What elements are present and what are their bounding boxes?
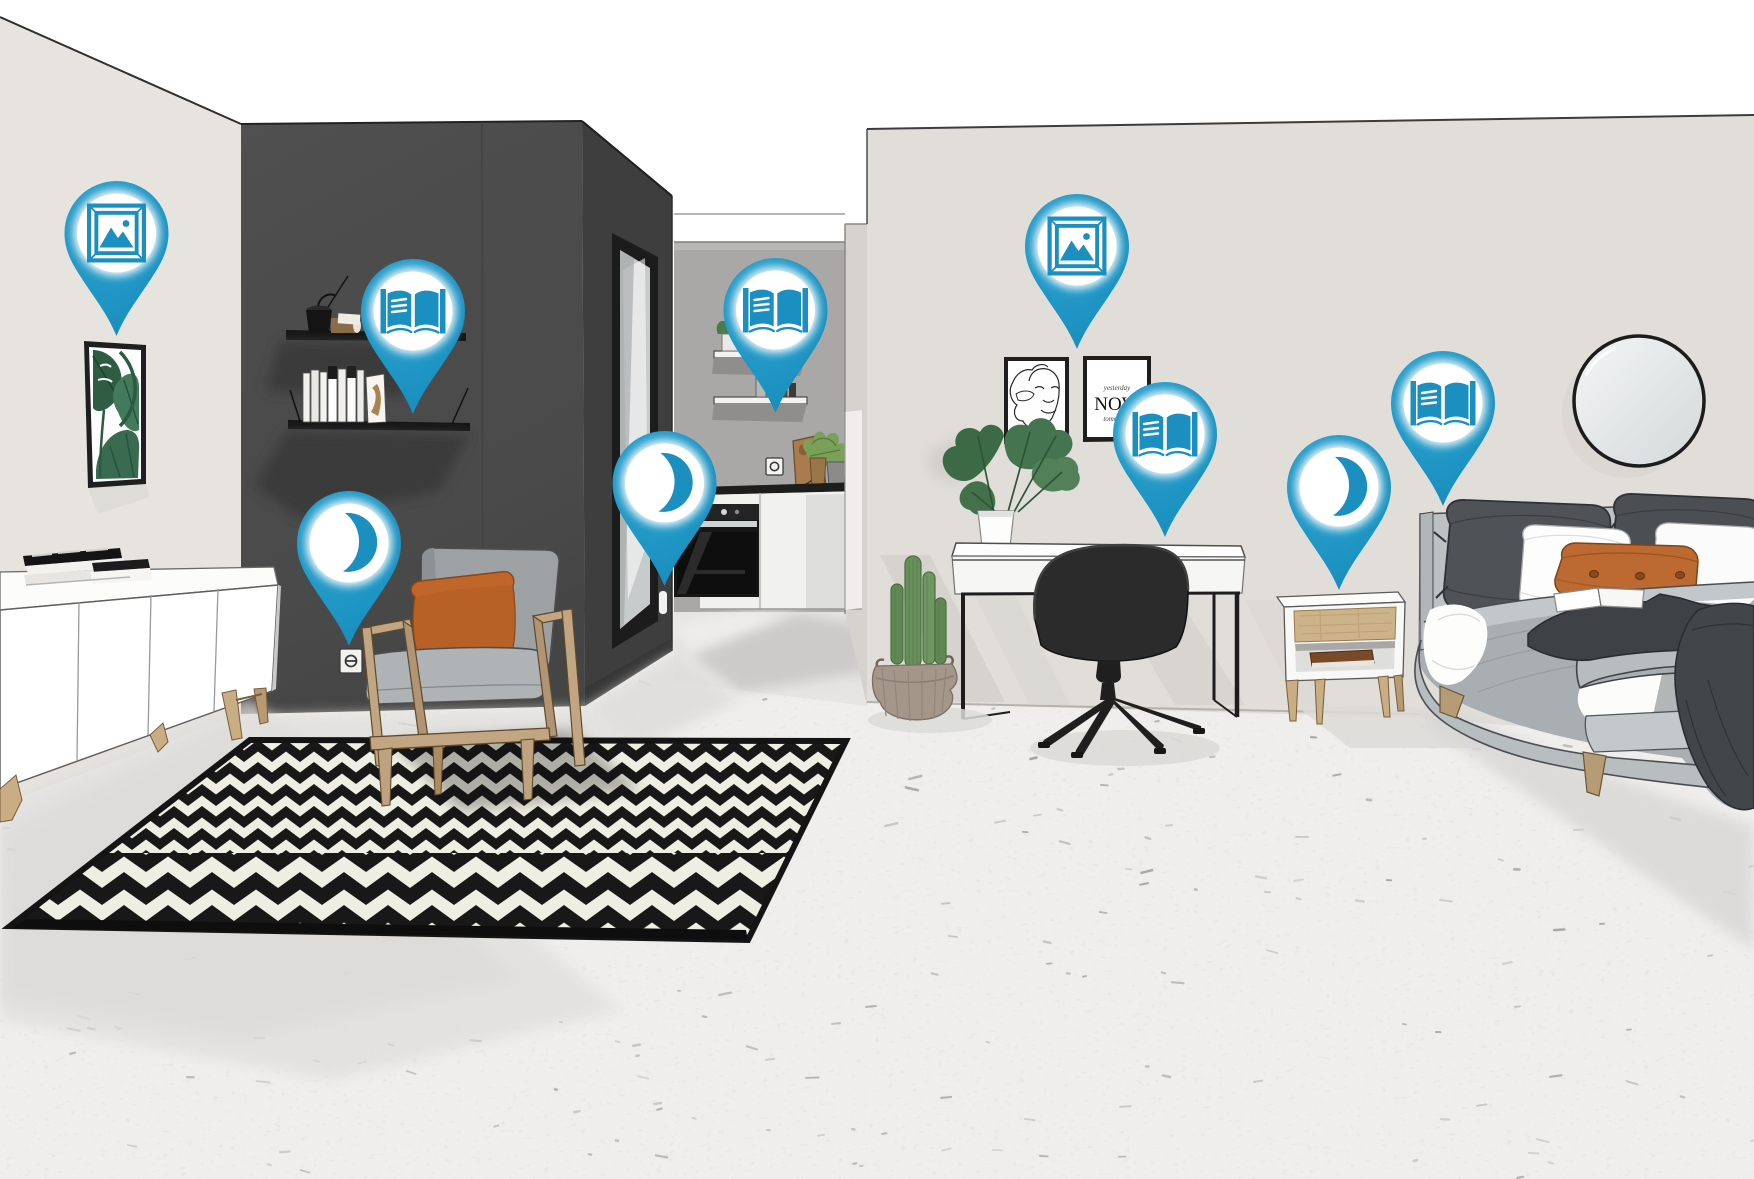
svg-text:yesterday: yesterday: [1103, 384, 1131, 392]
